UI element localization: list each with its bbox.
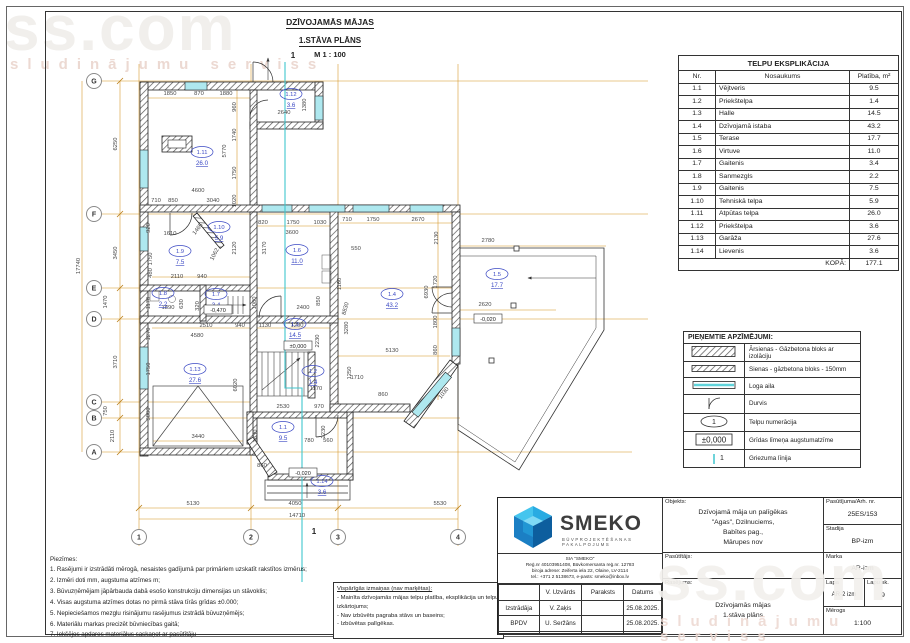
room-nr: 1.11: [679, 208, 716, 220]
room-name: Atpūtas telpa: [716, 208, 850, 220]
room-number: 1.2: [309, 369, 317, 375]
dim-label: 1170: [146, 297, 152, 309]
svg-text:1: 1: [712, 419, 716, 426]
dim-label: 850: [168, 198, 178, 204]
legend-label: Grīdas līmeņa augstumatzīme: [745, 431, 861, 449]
dim-label: 4600: [192, 188, 205, 194]
dim-label: 940: [235, 323, 245, 329]
merogs-value: 1:100: [824, 620, 901, 627]
room-area: 3.4: [850, 158, 899, 170]
dim-label: 1250: [347, 367, 353, 380]
drawing-sheet: ss.com sludinājumu serviss: [0, 0, 910, 643]
dim-label: 4050: [289, 501, 302, 507]
grid-label-col: 3: [336, 535, 340, 542]
dim-label: 850: [316, 296, 322, 306]
room-nr: 1.2: [679, 96, 716, 108]
room-area-label: 43.2: [386, 302, 399, 309]
pasutijuma-value: 25ES/153: [824, 511, 901, 518]
change-item: - Nav izbūvēts pagraba stāvs un baseins;: [337, 612, 500, 621]
explication-row: 1.12Priekštelpa3.6: [679, 221, 899, 233]
grid-label-row: A: [91, 450, 96, 457]
note-item: 5. Nepieciešamos mezglu risinājumu rasēj…: [50, 609, 338, 619]
explication-row: 1.11Atpūtas telpa26.0: [679, 208, 899, 220]
room-area-label: 11.0: [291, 258, 303, 265]
dim-label: 1470: [103, 296, 109, 309]
explication-row: 1.5Terase17.7: [679, 133, 899, 145]
note-item: 1. Rasējumi ir izstrādāti mērogā, nesais…: [50, 565, 338, 575]
legend-row: Loga aila: [684, 378, 860, 394]
dim-label: 1880: [220, 91, 233, 97]
dim-label: 2400: [297, 305, 310, 311]
room-number: 1.14: [316, 479, 328, 485]
dim-label: 8830: [341, 302, 350, 316]
dim-label: 2230: [315, 335, 321, 348]
grid-label-row: E: [92, 286, 97, 293]
company-info: SIA "SMEKO" Reģ.nr 40103951408, Būvkomer…: [498, 556, 662, 580]
explication-row: 1.6Virtuve11.0: [679, 146, 899, 158]
merogs-label: Mērogs: [826, 608, 845, 614]
section-marker-label: 1: [312, 527, 317, 536]
dim-label: 1750: [146, 363, 152, 376]
room-nr: 1.8: [679, 171, 716, 183]
explication-row: 1.9Gaitenis7.5: [679, 183, 899, 195]
dim-label: 1130: [259, 323, 271, 329]
room-area: 26.0: [850, 208, 899, 220]
level-mark: -0,470: [210, 308, 226, 314]
porch-outline: [265, 480, 350, 500]
room-area: 7.5: [850, 183, 899, 195]
note-item: 7. Iekšējos apdares materiālus saskaņot …: [50, 630, 338, 640]
lapu-sk-label: Lapu sk.: [867, 580, 889, 586]
room-number: 1.12: [285, 92, 296, 98]
room-number: 1.6: [293, 248, 301, 254]
room-area-label: 9.5: [279, 435, 288, 442]
smeko-logo-text: SMEKO: [560, 512, 642, 536]
sign-cell: Paraksts: [582, 585, 624, 601]
legend-label: Telpu numerācija: [745, 413, 861, 431]
level-mark: -0,020: [295, 471, 311, 477]
room-nr: 1.10: [679, 196, 716, 208]
dim-label: 710: [342, 217, 352, 223]
section-line-symbol: 1: [684, 449, 745, 467]
dim-label: 2640: [278, 110, 291, 116]
dim-label: 3040: [207, 198, 220, 204]
room-number: 1.8: [159, 291, 167, 297]
dim-label: 6930: [424, 286, 430, 299]
dim-label: 960: [232, 102, 238, 112]
sign-cell: Datums: [624, 585, 662, 601]
dim-label: 2130: [434, 232, 440, 245]
dim-label: 2670: [412, 217, 425, 223]
walls-layer: [140, 82, 460, 480]
dim-label: 1270: [146, 328, 152, 341]
rasejums-value: Dzīvojamās mājas 1.stāva plāns: [663, 601, 823, 621]
room-area: 43.2: [850, 121, 899, 133]
notes: Piezīmes: 1. Rasējumi ir izstrādāti mēro…: [50, 555, 338, 641]
wall-exterior-symbol: [684, 344, 745, 362]
room-name: Garāža: [716, 233, 850, 245]
dim-label: 860: [378, 392, 388, 398]
sign-header-row: V. UzvārdsParakstsDatums: [499, 585, 662, 601]
explication-row: 1.2Priekštelpa1.4: [679, 96, 899, 108]
dim-label: 3710: [113, 356, 119, 369]
col-header-area: Platība, m²: [850, 71, 899, 83]
dim-label: 630: [179, 299, 185, 309]
changes-list: - Mainīta dzīvojamās mājas telpu platība…: [337, 594, 500, 629]
fireplace: [168, 140, 186, 148]
dim-label: 5130: [386, 348, 399, 354]
legend-row: Durvis: [684, 394, 860, 413]
legend-label: Griezuma līnija: [745, 449, 861, 467]
room-name: Gaitenis: [716, 158, 850, 170]
room-area-label: 3.6: [287, 102, 296, 109]
room-area: 2.2: [850, 171, 899, 183]
dim-label: 970: [314, 404, 324, 410]
room-area-label: 17.7: [491, 282, 504, 289]
room-area-label: 26.0: [196, 160, 209, 167]
room-number: 1.10: [213, 225, 224, 231]
dim-label: 750: [103, 406, 109, 416]
drawing-title-line2: 1.STĀVA PLĀNS: [299, 36, 361, 47]
explication-row: 1.10Tehniskā telpa5.9: [679, 196, 899, 208]
room-area-label: 2.2: [159, 301, 168, 308]
room-nr: 1.6: [679, 146, 716, 158]
dim-label: 1750: [287, 220, 300, 226]
legend-row: 1Griezuma līnija: [684, 449, 860, 467]
dim-label: 320: [195, 301, 201, 311]
dim-label: 920: [146, 223, 152, 233]
dim-label: 820: [258, 220, 268, 226]
room-name: Tehniskā telpa: [716, 196, 850, 208]
dim-label: 1020: [232, 195, 238, 208]
room-name: Vējtveris: [716, 83, 850, 95]
room-nr: 1.4: [679, 121, 716, 133]
dim-label: 1750: [148, 253, 154, 266]
objekts-label: Objekts:: [665, 499, 686, 505]
room-explication-table: TELPU EKSPLIKĀCIJA Nr. Nosaukums Platība…: [678, 55, 899, 271]
room-number: 1.11: [197, 150, 208, 156]
room-number: 1.3: [291, 322, 299, 328]
dim-label: 1720: [433, 276, 439, 289]
dim-label: 550: [351, 246, 361, 252]
dim-label: 1610: [164, 231, 177, 237]
room-name: Priekštelpa: [716, 96, 850, 108]
sign-cell: [624, 632, 662, 634]
dim-label: 940: [197, 274, 207, 280]
notes-list: 1. Rasējumi ir izstrādāti mērogā, nesais…: [50, 565, 338, 640]
explication-total-label: KOPĀ:: [679, 258, 850, 270]
dim-label: 2120: [232, 242, 238, 255]
sign-table-body: V. UzvārdsParakstsDatumsIzstrādājaV. Zaķ…: [499, 585, 662, 634]
dim-label: 6020: [233, 379, 239, 392]
dim-label: 3600: [286, 230, 299, 236]
dim-label: 14710: [289, 513, 305, 519]
explication-body: 1.1Vējtveris9.51.2Priekštelpa1.41.3Halle…: [679, 83, 899, 258]
smeko-logo-icon: [512, 504, 554, 550]
room-nr: 1.12: [679, 221, 716, 233]
room-nr: 1.1: [679, 83, 716, 95]
note-item: 6. Materiālu markas precizēt būvniecības…: [50, 620, 338, 630]
explication-row: 1.14Lievenis3.6: [679, 246, 899, 258]
explication-row: 1.1Vējtveris9.5: [679, 83, 899, 95]
dim-label: 1800: [433, 316, 439, 329]
room-area: 17.7: [850, 133, 899, 145]
room-number: 1.4: [388, 292, 397, 298]
marka-label: Marka: [826, 554, 842, 560]
dim-label: 1750: [232, 167, 238, 180]
col-header-nr: Nr.: [679, 71, 716, 83]
sign-row: [499, 632, 662, 634]
dim-label: 4580: [191, 333, 204, 339]
svg-text:1: 1: [720, 455, 724, 462]
legend-row: Sienas - gāzbetona bloks - 150mm: [684, 362, 860, 378]
dim-label: 1740: [232, 129, 238, 142]
room-nr: 1.3: [679, 108, 716, 120]
dim-label: 3170: [262, 242, 268, 255]
door-symbol: [684, 394, 745, 413]
room-nr: 1.13: [679, 233, 716, 245]
lapu-sk-value: 9: [865, 592, 901, 599]
room-number: 1.1: [279, 425, 287, 431]
room-area: 27.6: [850, 233, 899, 245]
room-name: Lievenis: [716, 246, 850, 258]
room-name: Halle: [716, 108, 850, 120]
pasutijuma-label: Pasūtījuma/Arh. nr.: [826, 499, 875, 505]
level-mark-symbol: ±0,000: [684, 431, 745, 449]
room-area: 3.6: [850, 221, 899, 233]
room-nr: 1.9: [679, 183, 716, 195]
dim-label: 2780: [482, 238, 495, 244]
sign-row: BPDVU. Seržāns25.08.2025.: [499, 616, 662, 632]
legend-label: Durvis: [745, 394, 861, 413]
sign-cell: 25.08.2025.: [624, 616, 662, 632]
dim-label: 1380: [302, 99, 308, 112]
note-item: 2. Izmēri doti mm, augstuma atzīmes m;: [50, 576, 338, 586]
changes-box: Vispārīgās izmaiņas (nav marķētas): - Ma…: [333, 582, 504, 639]
window-symbol: [684, 378, 745, 394]
room-nr: 1.7: [679, 158, 716, 170]
room-number: 1.5: [493, 272, 501, 278]
change-item: - Izbūvētas palīgēkas.: [337, 620, 500, 629]
dim-label: 1750: [367, 217, 380, 223]
dim-label: 2110: [110, 430, 116, 442]
explication-row: 1.7Gaitenis3.4: [679, 158, 899, 170]
dim-label: 2510: [200, 323, 213, 329]
room-area: 3.6: [850, 246, 899, 258]
dim-label: 2530: [277, 404, 290, 410]
room-area-label: 1.4: [309, 379, 318, 386]
lapa-label: Lapa: [826, 580, 839, 586]
objekts-value: Dzīvojamā māja un palīgēkas "Agas", Dzil…: [663, 508, 823, 547]
legend-title: PIEŅEMTIE APZĪMĒJUMI:: [684, 332, 860, 344]
legend-row: ±0,000Grīdas līmeņa augstumatzīme: [684, 431, 860, 449]
dim-label: 1170: [310, 386, 322, 392]
drawing-scale: M 1 : 100: [250, 50, 410, 59]
dim-label: 3450: [113, 247, 119, 260]
grid-label-col: 2: [249, 535, 253, 542]
dim-label: 860: [433, 345, 439, 355]
dim-label: 870: [194, 91, 204, 97]
legend-label: Ārsienas - Gāzbetona bloks ar izolāciju: [745, 344, 861, 362]
room-number: 1.9: [176, 249, 184, 255]
dim-label: 860: [257, 463, 267, 469]
room-area-label: 3.6: [318, 489, 327, 496]
room-nr: 1.5: [679, 133, 716, 145]
sign-cell: 25.08.2025.: [624, 600, 662, 616]
explication-title: TELPU EKSPLIKĀCIJA: [679, 56, 899, 71]
grid-label-row: F: [92, 212, 97, 219]
sign-cell: Izstrādāja: [499, 600, 540, 616]
room-name: Virtuve: [716, 146, 850, 158]
grid-label-col: 1: [137, 535, 141, 542]
stadija-label: Stadija: [826, 526, 844, 532]
room-number: 1.7: [212, 292, 220, 298]
note-item: 4. Visas augstuma atzīmes dotas no pirmā…: [50, 598, 338, 608]
col-header-name: Nosaukums: [716, 71, 850, 83]
room-area: 5.9: [850, 196, 899, 208]
explication-total-value: 177.1: [850, 258, 899, 270]
level-mark: ±0,000: [290, 344, 307, 350]
sign-table: V. UzvārdsParakstsDatumsIzstrādājaV. Zaķ…: [498, 584, 662, 634]
dim-label: 17740: [76, 258, 82, 274]
room-name: Sanmezgls: [716, 171, 850, 183]
room-area-label: 14.5: [289, 332, 302, 339]
pasutitajs-label: Pasūtītājs:: [665, 554, 692, 560]
room-area-label: 7.5: [176, 259, 185, 266]
dim-label: 3330: [253, 430, 259, 443]
changes-title: Vispārīgās izmaiņas (nav marķētas):: [337, 585, 500, 594]
sign-cell: [499, 585, 540, 601]
terrace-outline: [458, 246, 604, 470]
title-block: SMEKO BŪVPROJEKTĒŠANAS PAKALPOJUMS SIA "…: [497, 497, 902, 635]
notes-title: Piezīmes:: [50, 555, 338, 565]
explication-row: 1.4Dzīvojamā istaba43.2: [679, 121, 899, 133]
room-name: Priekštelpa: [716, 221, 850, 233]
legend-label: Sienas - gāzbetona bloks - 150mm: [745, 362, 861, 378]
dim-label: 480: [148, 268, 154, 278]
sign-row: IzstrādājaV. Zaķis25.08.2025.: [499, 600, 662, 616]
legend-row: Ārsienas - Gāzbetona bloks ar izolāciju: [684, 344, 860, 362]
dim-label: 1160: [337, 278, 343, 290]
explication-row: 1.8Sanmezgls2.2: [679, 171, 899, 183]
room-number: 1.13: [189, 367, 200, 373]
grid-label-col: 4: [456, 535, 460, 542]
room-area: 1.4: [850, 96, 899, 108]
legend-row: 1Telpu numerācija: [684, 413, 860, 431]
legend-body: Ārsienas - Gāzbetona bloks ar izolācijuS…: [684, 344, 860, 467]
explication-row: 1.3Halle14.5: [679, 108, 899, 120]
room-name: Gaitenis: [716, 183, 850, 195]
sign-cell: U. Seržāns: [539, 616, 582, 632]
dim-label: 780: [304, 438, 314, 444]
marka-value: AR-izm: [824, 565, 901, 572]
room-area-label: 27.6: [189, 377, 202, 384]
level-mark: -0,020: [480, 317, 496, 323]
sign-cell: [499, 632, 540, 634]
wall-interior-symbol: [684, 362, 745, 378]
room-area: 9.5: [850, 83, 899, 95]
grid-label-row: D: [91, 317, 96, 324]
dim-label: 2620: [479, 302, 492, 308]
dim-label: 710: [151, 198, 161, 204]
dim-label: 1850: [164, 91, 177, 97]
legend-label: Loga aila: [745, 378, 861, 394]
grid-label-row: C: [91, 400, 96, 407]
stadija-value: BP-izm: [824, 538, 901, 545]
dim-label: 5530: [434, 501, 447, 507]
dim-label: 3440: [192, 434, 205, 440]
grid-label-row: B: [91, 416, 96, 423]
rasejums-label: Rasējums:: [665, 580, 692, 586]
room-area: 14.5: [850, 108, 899, 120]
dim-label: 1080: [252, 297, 258, 310]
svg-text:±0,000: ±0,000: [702, 435, 727, 444]
note-item: 3. Būvuzņēmējam jāpārbauda dabā esošo ko…: [50, 587, 338, 597]
room-name: Terase: [716, 133, 850, 145]
lapa-value: AR-2 izm: [824, 592, 864, 598]
drawing-title-line1: DZĪVOJAMĀS MĀJAS: [286, 17, 374, 29]
sign-cell: [582, 600, 624, 616]
room-area-label: 5.9: [215, 235, 224, 242]
dim-label: 560: [323, 438, 333, 444]
dim-label: 3280: [344, 322, 350, 335]
explication-row: 1.13Garāža27.6: [679, 233, 899, 245]
dim-label: 1062: [209, 247, 220, 261]
dim-label: 6250: [113, 138, 119, 151]
legend: PIEŅEMTIE APZĪMĒJUMI: Ārsienas - Gāzbeto…: [683, 331, 861, 468]
room-name: Dzīvojamā istaba: [716, 121, 850, 133]
dim-label: 2230: [321, 426, 327, 439]
change-item: - Mainīta dzīvojamās mājas telpu platība…: [337, 594, 500, 612]
sign-cell: [582, 616, 624, 632]
sign-cell: [582, 632, 624, 634]
grid-label-row: G: [91, 79, 97, 86]
dim-label: 3000: [146, 408, 152, 421]
drawing-title: DZĪVOJAMĀS MĀJAS 1.STĀVA PLĀNS M 1 : 100: [250, 12, 410, 59]
dim-label: 2110: [171, 274, 183, 280]
room-number-symbol: 1: [684, 413, 745, 431]
dim-label: 1030: [314, 220, 327, 226]
sign-cell: [539, 632, 582, 634]
dim-label: 5130: [187, 501, 200, 507]
smeko-logo-tagline: BŪVPROJEKTĒŠANAS PAKALPOJUMS: [562, 537, 662, 547]
sign-cell: V. Zaķis: [539, 600, 582, 616]
room-area: 11.0: [850, 146, 899, 158]
room-nr: 1.14: [679, 246, 716, 258]
smeko-logo: SMEKO BŪVPROJEKTĒŠANAS PAKALPOJUMS: [512, 504, 662, 550]
sign-cell: V. Uzvārds: [539, 585, 582, 601]
dim-label: 5770: [222, 145, 228, 158]
sign-cell: BPDV: [499, 616, 540, 632]
